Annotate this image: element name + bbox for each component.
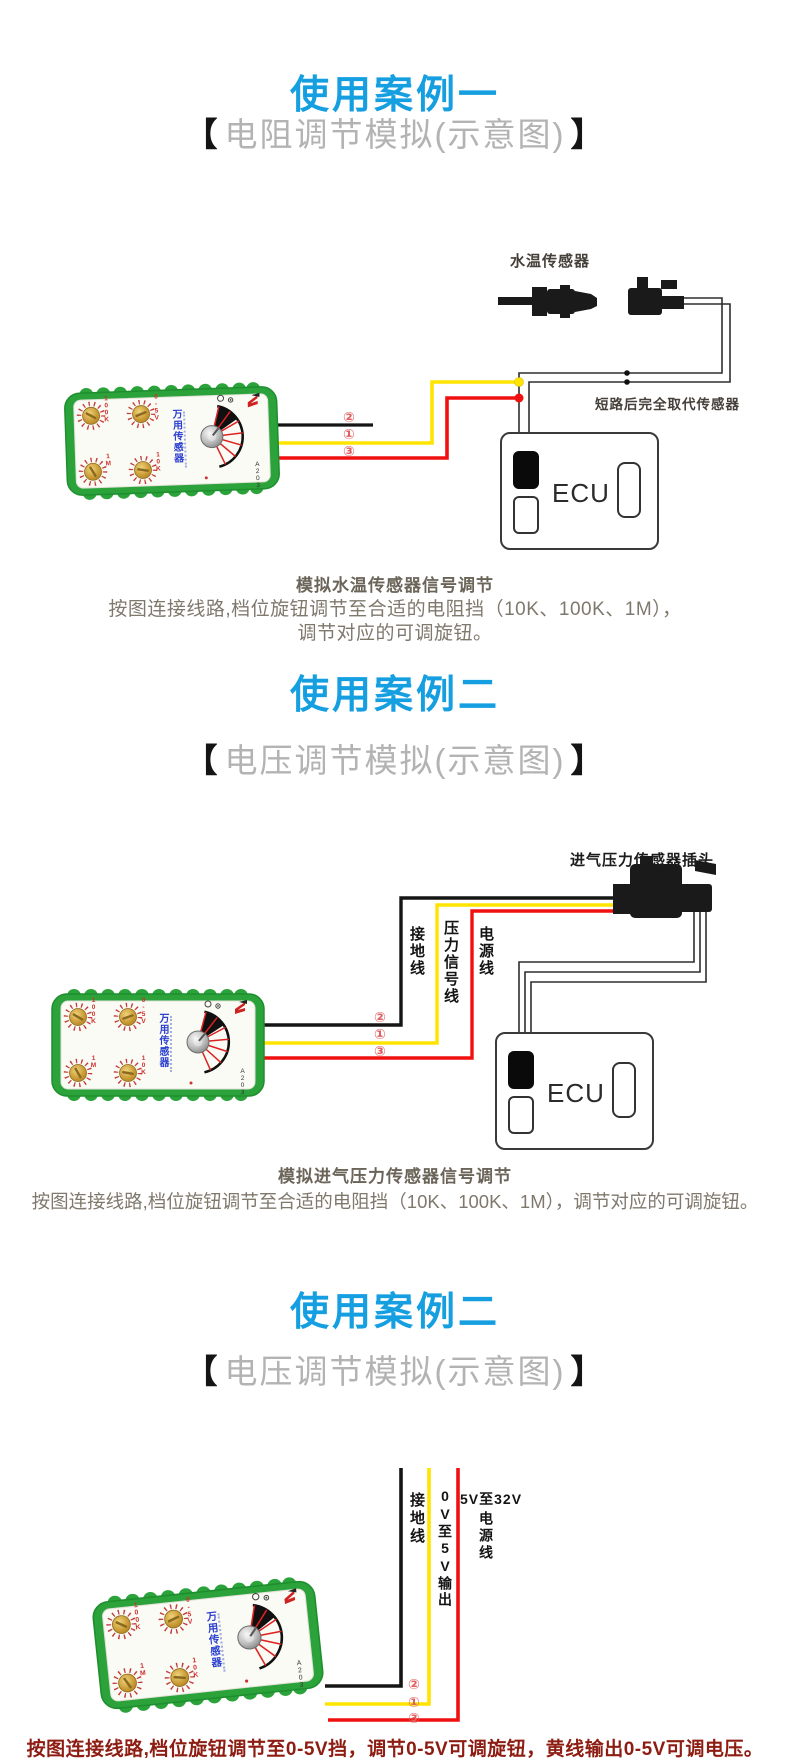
sensor-harness-wires (519, 298, 730, 453)
red-junction-dot (515, 394, 524, 403)
yellow-wire (272, 382, 516, 443)
section2-title: 使用案例二 (0, 664, 790, 720)
pressure-plug-label: 进气压力传感器插头 (570, 849, 714, 870)
junction-dot (624, 370, 630, 376)
knob-label-05v: 0-5V (152, 393, 160, 421)
wire-number-1: ① (343, 426, 355, 443)
section1-heading: 模拟水温传感器信号调节 (0, 571, 790, 596)
section1-body-line1: 按图连接线路,档位旋钮调节至合适的电阻挡（10K、100K、1M）， (0, 594, 790, 621)
wire-number-2: ② (343, 409, 355, 426)
power-wire-label: 电源线 (475, 926, 496, 977)
ecu-label: ECU (552, 478, 610, 509)
ecu-box: ECU (500, 432, 659, 550)
short-note-label: 短路后完全取代传感器 (595, 393, 740, 413)
ground-wire-label: 接地线 (406, 926, 427, 977)
knob-label-05v: 0-5V (140, 997, 147, 1025)
knob-label-100k: 100K (90, 997, 97, 1025)
wire-number-2: ② (408, 1676, 420, 1693)
wire-number-3: ③ (343, 443, 355, 460)
bracket-close: 】 (570, 1353, 605, 1390)
ecu-box: ECU (495, 1032, 654, 1150)
wire-number-2: ② (374, 1009, 386, 1026)
device-model-label: A203 (239, 1068, 246, 1096)
dial-min-dot (190, 1082, 193, 1085)
section2-body-line1: 按图连接线路,档位旋钮调节至合适的电阻挡（10K、100K、1M），调节对应的可… (0, 1188, 790, 1214)
yellow-junction-dot (515, 378, 524, 387)
knob-label-100k: 100K (102, 395, 110, 423)
ground-wire-label: 接地线 (406, 1492, 427, 1546)
device-subtext-bar (170, 1016, 172, 1072)
ecu-slot-small (508, 1096, 534, 1134)
ecu-label: ECU (547, 1078, 605, 1109)
knob-label-1m: 1M (138, 1662, 147, 1677)
section2-subtitle: 【电压调节模拟(示意图)】 (0, 734, 790, 782)
section1-subtitle-text: 电阻调节模拟(示意图) (225, 116, 566, 153)
ecu-connector (513, 451, 539, 489)
water-temp-sensor-label: 水温传感器 (510, 250, 590, 271)
wire-number-3: ③ (408, 1710, 420, 1727)
knob-label-1m: 1M (104, 453, 111, 467)
sensor-simulator-device: 万用传感器 A203 100K 0-5V 1M 10K (60, 376, 284, 506)
water-temp-sensor-icon (498, 285, 597, 318)
knob-label-1m: 1M (90, 1055, 97, 1069)
junction-dot (624, 379, 630, 385)
output-wire-label: 0V至5V输出 (435, 1488, 455, 1608)
wire-number-1: ① (408, 1694, 420, 1711)
sensor-simulator-device: 万用传感器 A203 100K 0-5V 1M 10K (86, 1569, 329, 1721)
section3-subtitle-text: 电压调节模拟(示意图) (225, 1353, 566, 1390)
knob-label-10k: 10K (140, 1055, 147, 1076)
device-model-label: A203 (254, 461, 262, 489)
section3-title: 使用案例二 (0, 1281, 790, 1337)
section3-subtitle: 【电压调节模拟(示意图)】 (0, 1345, 790, 1393)
ecu-connector (508, 1051, 534, 1089)
power-wire-label: 电源线 (476, 1511, 496, 1562)
red-wire (272, 398, 516, 458)
ecu-harness-wires (519, 906, 706, 1050)
signal-wire-label: 压力信号线 (440, 920, 461, 1005)
section3-instruction: 按图连接线路,档位旋钮调节至0-5V挡，调节0-5V可调旋钮，黄线输出0-5V可… (0, 1734, 790, 1761)
wire-number-1: ① (374, 1026, 386, 1043)
ecu-slot-tall (617, 462, 641, 518)
section2-heading: 模拟进气压力传感器信号调节 (0, 1162, 790, 1187)
bracket-open: 【 (185, 1353, 220, 1390)
ecu-slot-tall (612, 1062, 636, 1118)
bracket-close: 】 (570, 742, 605, 779)
knob-label-10k: 10K (154, 451, 162, 472)
bracket-open: 【 (185, 116, 220, 153)
sensor-simulator-device: 万用传感器 A203 100K 0-5V 1M 10K (48, 984, 268, 1106)
bracket-open: 【 (185, 742, 220, 779)
power-range-label: 5V至32V (460, 1489, 522, 1509)
product-usage-page: 使用案例一 【电阻调节模拟(示意图)】 水温传感器 短路后完全取代传感器 ② ① (0, 0, 790, 1762)
ecu-slot-small (513, 496, 539, 534)
indicator-led-dot (217, 1005, 219, 1007)
bracket-close: 】 (570, 116, 605, 153)
section2-subtitle-text: 电压调节模拟(示意图) (225, 742, 566, 779)
sensor-plug-icon (628, 277, 684, 315)
wire-number-3: ③ (374, 1043, 386, 1060)
device-name-label: 万用传感器 (155, 1013, 170, 1068)
section1-body-line2: 调节对应的可调旋钮。 (0, 618, 790, 645)
section1-subtitle: 【电阻调节模拟(示意图)】 (0, 108, 790, 156)
black-wire (325, 1468, 401, 1686)
